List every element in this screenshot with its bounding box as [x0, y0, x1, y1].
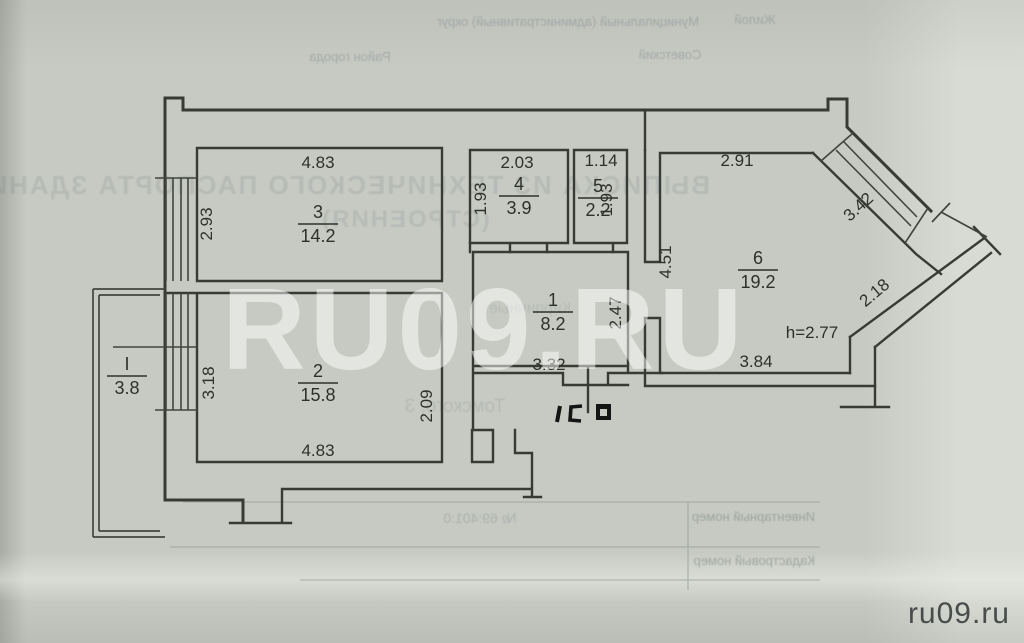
room-number: 3: [313, 202, 323, 222]
scanned-floorplan-page: Муниципальный (административный) округ Ж…: [0, 0, 1024, 643]
dimension-label: h=2.77: [786, 323, 838, 342]
room-area: 3.8: [114, 378, 139, 398]
dimension-label: 3.42: [840, 189, 877, 225]
site-logo: ru09.ru: [908, 597, 1010, 631]
entrance-walls: [230, 430, 541, 523]
dimension-label: 4.83: [301, 153, 334, 172]
door-swing-marks: [557, 404, 611, 422]
room-area: 14.2: [300, 226, 335, 246]
dimension-label: 4.83: [301, 441, 334, 460]
dimension-label: 3.18: [199, 366, 218, 399]
dimension-label: 1.14: [584, 151, 617, 170]
bleed-table-lines: [170, 502, 820, 590]
dimension-label: 2.03: [500, 153, 533, 172]
dimension-label: 1.93: [471, 182, 490, 215]
room-area: 3.9: [506, 198, 531, 218]
dimension-label: 2.18: [856, 275, 894, 311]
room-number: I: [124, 354, 129, 374]
dimension-label: 2.93: [197, 207, 216, 240]
room-number: 4: [514, 174, 524, 194]
watermark-text: RU09.RU: [222, 262, 792, 396]
room-number: 5: [593, 176, 603, 196]
room-area: 2.2: [585, 200, 610, 220]
dimension-label: 2.91: [720, 151, 753, 170]
